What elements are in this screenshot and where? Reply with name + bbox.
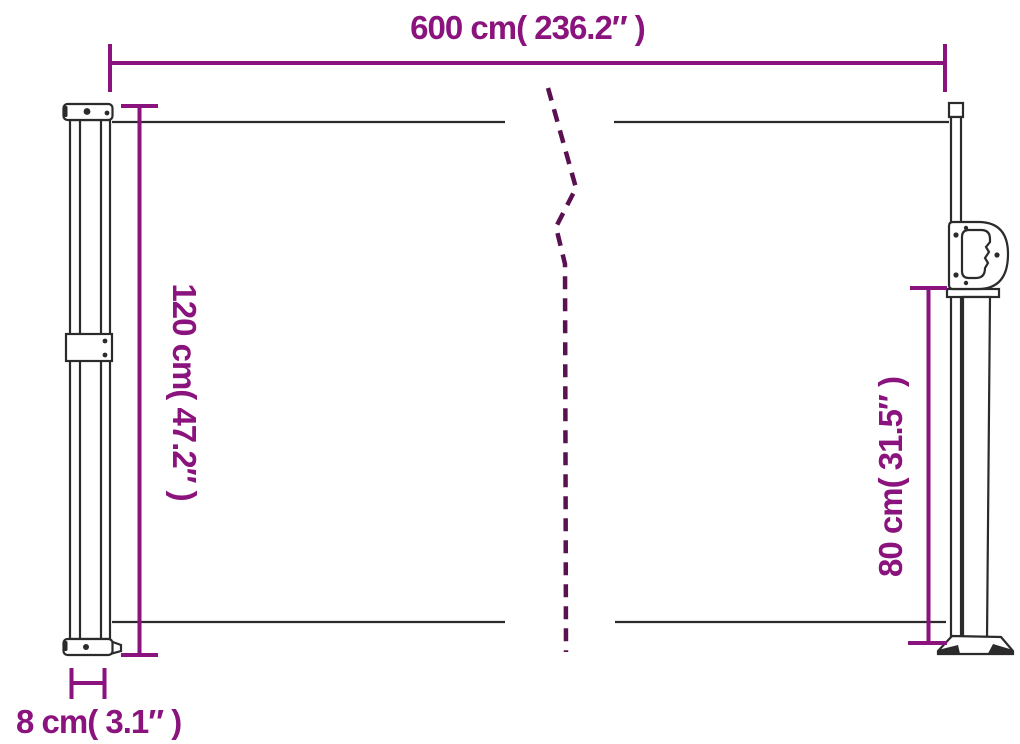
- awning-dimension-diagram: 600 cm( 236.2″ ) 120 cm( 47.2″ ) 80 cm( …: [0, 0, 1020, 744]
- break-line: [548, 88, 576, 652]
- cassette-height-dimension-line: [121, 106, 158, 655]
- screw-dot: [103, 353, 108, 358]
- pole-height-dimension-label: 80 cm( 31.5″ ): [872, 377, 910, 577]
- pole-shaft: [951, 117, 961, 640]
- screw-dot: [953, 232, 958, 237]
- awning-drawing: [0, 0, 1020, 744]
- screw-dot: [83, 644, 89, 650]
- screw-dot: [953, 272, 958, 277]
- cassette-post: [63, 104, 121, 655]
- pole-leg-profile: [963, 297, 990, 640]
- depth-dimension-line: [72, 668, 105, 699]
- pole-top-cap: [949, 103, 963, 117]
- pole-height-dimension-line: [908, 288, 947, 643]
- width-dimension-line: [110, 44, 945, 92]
- screw-dot: [103, 339, 108, 344]
- cassette-height-dimension-label: 120 cm( 47.2″ ): [165, 283, 203, 500]
- screw-dot: [84, 108, 91, 115]
- handle-grip-cutout: [962, 230, 990, 278]
- handle-base-band: [947, 289, 999, 297]
- cassette-top-cap-notch: [63, 106, 68, 117]
- support-pole: [938, 103, 1013, 654]
- screw-dot: [994, 252, 999, 257]
- screw-dot: [964, 281, 968, 285]
- width-dimension-label: 600 cm( 236.2″ ): [110, 9, 945, 47]
- cassette-bottom-cap-notch: [63, 641, 68, 651]
- cassette-body: [70, 120, 110, 639]
- depth-dimension-label: 8 cm( 3.1″ ): [16, 703, 181, 741]
- screw-dot: [964, 226, 968, 230]
- screw-dot: [105, 111, 110, 116]
